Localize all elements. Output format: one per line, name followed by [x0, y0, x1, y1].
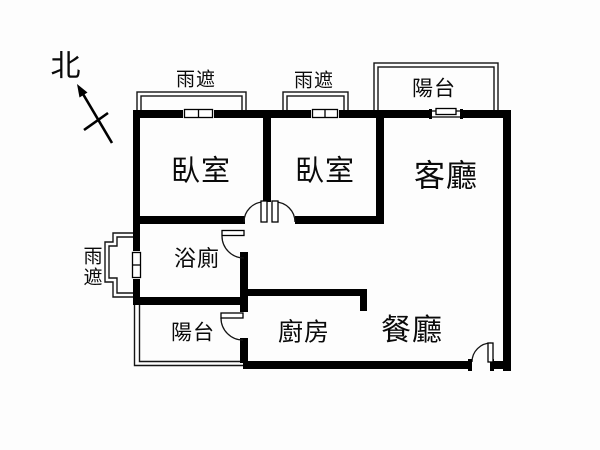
dining-room-label: 餐廳: [381, 316, 443, 346]
wall-bedroom2-bottom: [295, 216, 384, 224]
entrance-jamb-left: [468, 359, 472, 371]
compass-arrowhead-icon: [77, 84, 88, 98]
living-room-label: 客廳: [414, 161, 478, 192]
balcony-door-arc: [221, 318, 243, 340]
wall-bedroom1-bottom: [133, 216, 245, 224]
floor-plan-drawing: [0, 0, 600, 450]
canopy-1-label: 雨遮: [176, 71, 216, 90]
north-compass: [77, 84, 112, 143]
balcony-top-label: 陽台: [412, 79, 456, 100]
wall-right: [503, 110, 511, 371]
balcony-bottom-label: 陽台: [171, 323, 215, 344]
floor-plan: 北 雨遮 雨遮 雨遮 陽台 臥室 臥室 客廳 浴廁 陽台 廚房 餐廳: [0, 0, 600, 450]
sliding-door-panel: [436, 109, 456, 115]
bathroom-door-leaf: [222, 231, 244, 236]
sliding-door-balcony: [429, 108, 463, 120]
doors: [221, 201, 494, 371]
bedroom1-label: 臥室: [171, 158, 231, 187]
windows: [131, 108, 339, 279]
sliding-door-jamb-right: [460, 109, 463, 119]
kitchen-label: 廚房: [278, 321, 330, 346]
wall-bathroom-bottom: [133, 297, 247, 305]
sliding-door-jamb-left: [429, 109, 432, 119]
wall-kitchen-stub: [360, 289, 367, 311]
bedroom2-door-leaf: [272, 201, 278, 222]
entrance-door-leaf: [488, 343, 493, 362]
bedroom1-door-leaf: [261, 201, 267, 222]
bathroom-label: 浴廁: [174, 248, 220, 270]
canopy-2-label: 雨遮: [294, 72, 334, 91]
wall-between-bedrooms: [263, 110, 271, 202]
wall-kitchen-top: [243, 289, 367, 296]
entrance-gap: [472, 359, 490, 371]
north-label: 北: [51, 52, 82, 82]
wall-bedroom2-living: [376, 110, 384, 224]
balcony-door-leaf: [221, 313, 243, 318]
canopy-left-label: 雨遮: [82, 246, 101, 288]
bedroom2-label: 臥室: [295, 158, 355, 187]
wall-hall-lower: [240, 338, 248, 363]
compass-shaft: [83, 94, 112, 143]
